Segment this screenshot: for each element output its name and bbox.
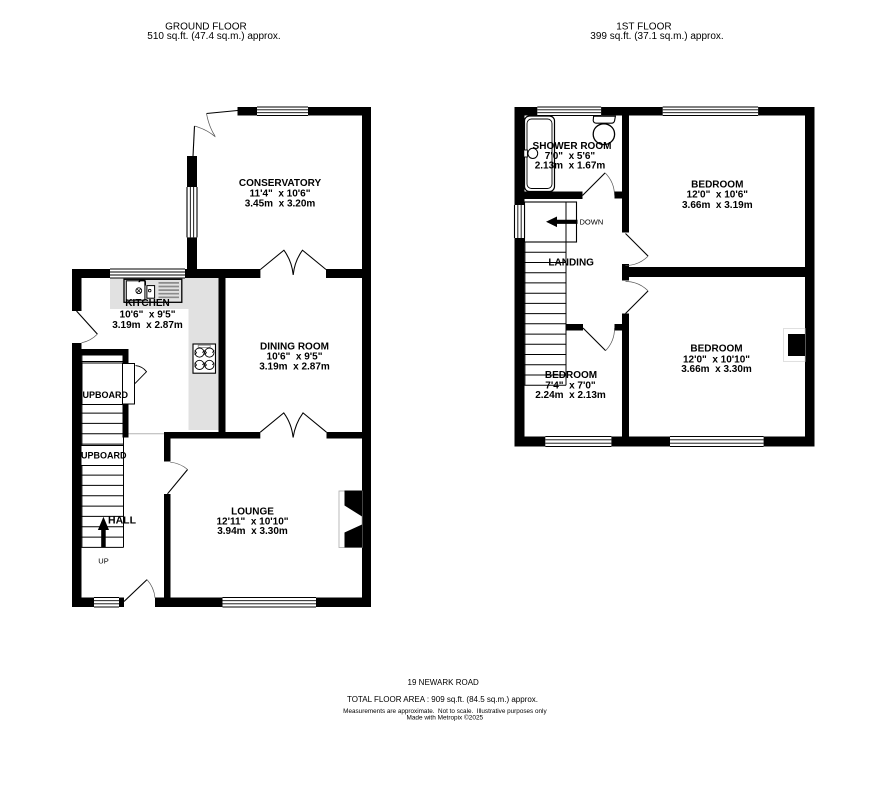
svg-text:3.94m x 3.30m: 3.94m x 3.30m xyxy=(217,526,288,537)
svg-text:3.45m x 3.20m: 3.45m x 3.20m xyxy=(245,199,316,210)
svg-text:KITCHEN: KITCHEN xyxy=(125,298,169,309)
svg-text:UP: UP xyxy=(98,556,108,565)
svg-text:3.66m x 3.19m: 3.66m x 3.19m xyxy=(682,200,753,211)
svg-text:3.19m x 2.87m: 3.19m x 2.87m xyxy=(112,320,183,331)
svg-text:Made with Metropix ©2025: Made with Metropix ©2025 xyxy=(406,714,483,722)
svg-text:BEDROOM: BEDROOM xyxy=(690,344,742,355)
svg-text:2.13m x 1.67m: 2.13m x 1.67m xyxy=(535,161,606,172)
svg-text:510 sq.ft. (47.4 sq.m.) approx: 510 sq.ft. (47.4 sq.m.) approx. xyxy=(147,31,280,42)
svg-text:10'6" x 9'5": 10'6" x 9'5" xyxy=(120,309,176,320)
svg-text:3.19m x 2.87m: 3.19m x 2.87m xyxy=(259,361,330,372)
svg-text:CUPBOARD: CUPBOARD xyxy=(76,390,129,400)
svg-text:399 sq.ft. (37.1 sq.m.) approx: 399 sq.ft. (37.1 sq.m.) approx. xyxy=(590,31,723,42)
svg-text:TOTAL FLOOR AREA : 909 sq.ft.: TOTAL FLOOR AREA : 909 sq.ft. (84.5 sq.m… xyxy=(347,695,538,704)
svg-text:LANDING: LANDING xyxy=(548,258,594,269)
svg-text:19 NEWARK ROAD: 19 NEWARK ROAD xyxy=(408,678,479,687)
svg-text:DOWN: DOWN xyxy=(580,217,604,226)
svg-text:3.66m x 3.30m: 3.66m x 3.30m xyxy=(681,364,752,375)
svg-text:CUPBOARD: CUPBOARD xyxy=(74,451,127,461)
svg-text:HALL: HALL xyxy=(108,515,137,527)
svg-text:2.24m x 2.13m: 2.24m x 2.13m xyxy=(535,390,606,401)
